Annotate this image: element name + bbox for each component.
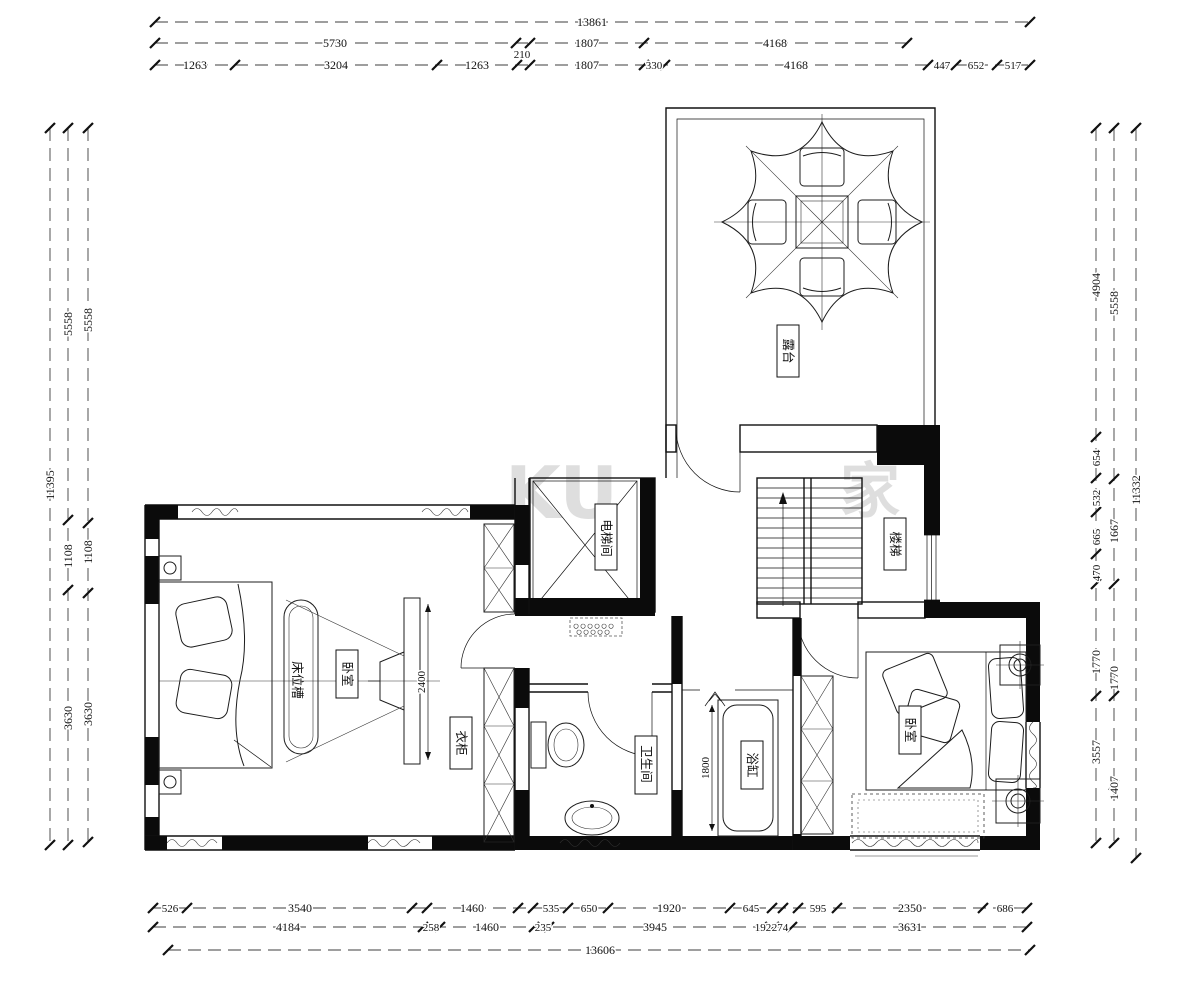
dimensions-left: 11395 5558 1108 3630 5558 1108 3630 xyxy=(43,123,95,850)
toilet-bowl xyxy=(548,723,584,767)
dim-label: 3204 xyxy=(324,58,348,72)
bed-left xyxy=(159,556,272,794)
door-swing-arc xyxy=(798,618,858,678)
room-label-bedroom-left: 卧室 xyxy=(340,661,355,686)
dim-label: 13606 xyxy=(585,943,615,957)
faucet xyxy=(590,804,594,808)
dim-label: 3945 xyxy=(643,920,667,934)
bathtub-zone: 1800 浴缸 xyxy=(682,690,795,850)
wall-fill xyxy=(432,836,515,850)
window-break xyxy=(368,840,420,847)
dim-label: 665 xyxy=(1091,528,1103,545)
wall-fill xyxy=(877,425,940,465)
bed-right xyxy=(866,652,1026,790)
dim-arrow xyxy=(425,752,431,760)
dim-label: 330 xyxy=(646,60,663,72)
rug xyxy=(852,794,984,838)
cabinet-hatch xyxy=(484,668,514,842)
window-break xyxy=(1030,722,1037,788)
dim-label: 1770 xyxy=(1107,666,1121,690)
dim-label: 5730 xyxy=(323,36,347,50)
wall-fill xyxy=(980,836,1040,850)
bed-frame xyxy=(159,582,272,768)
dim-label: 470 xyxy=(1091,564,1103,581)
dim-label: 258 xyxy=(423,922,440,934)
wall-fill xyxy=(924,465,940,535)
pillow xyxy=(175,668,234,720)
dim-label: 526 xyxy=(162,903,179,915)
pillow xyxy=(988,657,1024,719)
dim-label: 4184 xyxy=(276,920,300,934)
room-label-stairs: 楼梯 xyxy=(888,531,903,556)
wall-fill xyxy=(1026,602,1040,722)
dim-label: 3557 xyxy=(1089,740,1103,764)
dim-label: 654 xyxy=(1091,449,1103,466)
sink xyxy=(565,801,619,835)
dim-label: 1920 xyxy=(657,901,681,915)
lamp xyxy=(164,562,176,574)
dim-label: 535 xyxy=(543,903,560,915)
dimensions-right: 4904 654 532 665 470 1770 3557 5558 1667… xyxy=(1089,123,1143,863)
floor-plan-drawing: KU 家 13861 5730 210 1807 4168 1263 3204 … xyxy=(0,0,1200,985)
dim-label-bathtub: 1800 xyxy=(700,757,712,780)
cabinet-hatch xyxy=(484,524,514,612)
room-label-balcony: 露台 xyxy=(781,338,796,363)
wall-fill xyxy=(145,556,159,604)
wall-fill xyxy=(925,602,1040,618)
dim-label: 4168 xyxy=(784,58,808,72)
dim-arrow xyxy=(709,705,715,712)
wall-fill xyxy=(640,478,655,612)
door-swing-arc xyxy=(461,614,515,668)
dim-label: 13861 xyxy=(577,15,607,29)
wardrobe: 衣柜 xyxy=(450,524,514,842)
window-break xyxy=(192,509,238,516)
window-break xyxy=(852,840,978,847)
bathroom: 卫生间 xyxy=(529,616,682,850)
dimensions-top: 13861 5730 210 1807 4168 1263 3204 1263 … xyxy=(150,15,1035,72)
wall-fill xyxy=(515,790,529,850)
wall-fill xyxy=(672,790,682,850)
dim-label: 1263 xyxy=(465,58,489,72)
dim-label: 5558 xyxy=(81,308,95,332)
parasol xyxy=(714,114,930,330)
dim-label: 274 xyxy=(772,922,789,934)
wall-fill xyxy=(672,616,682,684)
wall-window-frame xyxy=(1026,722,1040,788)
window-break xyxy=(167,840,217,847)
floor-plan-page: KU 家 13861 5730 210 1807 4168 1263 3204 … xyxy=(0,0,1200,985)
nightstand xyxy=(159,556,181,580)
room-label-elevator: 电梯间 xyxy=(599,519,613,557)
wall-segment xyxy=(858,602,925,618)
wall-fill xyxy=(222,836,368,850)
toilet-tank xyxy=(531,722,546,768)
wall-fill xyxy=(515,668,529,708)
lamp xyxy=(164,776,176,788)
dim-label: 1460 xyxy=(475,920,499,934)
dim-label: 210 xyxy=(514,49,531,61)
dim-label: 1770 xyxy=(1089,650,1103,674)
balcony-bottom-wall xyxy=(740,425,877,452)
dim-label: 1108 xyxy=(81,540,95,564)
blanket-edge xyxy=(236,584,245,766)
toilet xyxy=(531,722,584,768)
toilet-bowl-inner xyxy=(554,729,578,761)
dim-label: 3631 xyxy=(898,920,922,934)
rug-inner xyxy=(858,800,978,832)
bedroom-top-wall xyxy=(145,505,515,519)
dim-label: 192 xyxy=(755,922,772,934)
nightstand xyxy=(159,770,181,794)
dim-label: 1807 xyxy=(575,36,599,50)
room-label-bathroom: 卫生间 xyxy=(639,745,653,783)
hall-window xyxy=(924,535,940,600)
door-jamb xyxy=(666,425,676,452)
pillow xyxy=(174,595,234,649)
dim-label: 595 xyxy=(810,903,827,915)
dim-arrow xyxy=(425,604,431,612)
window-break xyxy=(422,509,468,516)
vent-symbol xyxy=(570,618,622,636)
watermark-right: 家 xyxy=(840,457,900,527)
dim-label: 2350 xyxy=(898,901,922,915)
dim-label: 1263 xyxy=(183,58,207,72)
sink-inner xyxy=(572,807,612,829)
wall-fill xyxy=(145,737,159,785)
balcony: 露台 xyxy=(666,108,940,492)
dimensions-bottom: 526 3540 1460 535 650 1920 645 595 2350 … xyxy=(148,901,1035,957)
watermark: KU 家 xyxy=(505,451,900,535)
dim-label: 5558 xyxy=(61,312,75,336)
dim-label: 5558 xyxy=(1107,291,1121,315)
cabinet-hatch xyxy=(801,676,833,834)
dim-label: 1667 xyxy=(1107,519,1121,543)
bedroom-left: 床位槽 卧室 2400 衣柜 xyxy=(145,478,529,850)
wall-fill xyxy=(145,836,167,850)
pillow xyxy=(988,721,1024,783)
dim-label: 650 xyxy=(581,903,598,915)
dim-arrow xyxy=(709,824,715,831)
shower-symbol xyxy=(705,692,725,706)
door-swing-arc xyxy=(676,428,740,492)
room-label-wardrobe: 衣柜 xyxy=(454,730,469,755)
dim-label: 447 xyxy=(934,60,951,72)
wall-fill xyxy=(145,505,159,539)
dim-label: 4168 xyxy=(763,36,787,50)
dim-label: 1407 xyxy=(1107,776,1121,800)
wall-fill xyxy=(682,836,795,850)
dim-label: 645 xyxy=(743,903,760,915)
dim-label: 517 xyxy=(1005,60,1022,72)
dim-label: 3630 xyxy=(61,706,75,730)
wall-fill xyxy=(515,598,655,616)
dim-label: 235 xyxy=(535,922,552,934)
wall-fill xyxy=(529,836,672,850)
wall-fill xyxy=(793,618,801,676)
dim-label: 686 xyxy=(997,903,1014,915)
dim-label: 3540 xyxy=(288,901,312,915)
room-label-bed-niche: 床位槽 xyxy=(290,661,305,699)
dim-label: 3630 xyxy=(81,702,95,726)
wall-fill xyxy=(470,505,515,519)
bed-frame xyxy=(866,652,1026,790)
dim-label: 532 xyxy=(1091,490,1103,507)
dim-label: 1108 xyxy=(61,544,75,568)
bedroom-right: 卧室 xyxy=(757,602,1044,856)
wall-fill xyxy=(515,505,529,565)
room-label-bathtub: 浴缸 xyxy=(745,752,760,777)
bathroom-top-wall xyxy=(529,684,672,692)
parasol-spokes xyxy=(714,114,930,330)
dim-label: 11395 xyxy=(43,470,57,500)
stair-hall: 楼梯 xyxy=(757,465,940,618)
dim-label-tv: 2400 xyxy=(416,671,428,694)
dim-label: 4904 xyxy=(1089,273,1103,297)
wall-fill xyxy=(795,836,850,850)
room-label-bedroom-right: 卧室 xyxy=(903,717,918,742)
dim-label: 11332 xyxy=(1129,475,1143,505)
dim-label: 1460 xyxy=(460,901,484,915)
dim-label: 652 xyxy=(968,60,985,72)
dim-label: 1807 xyxy=(575,58,599,72)
